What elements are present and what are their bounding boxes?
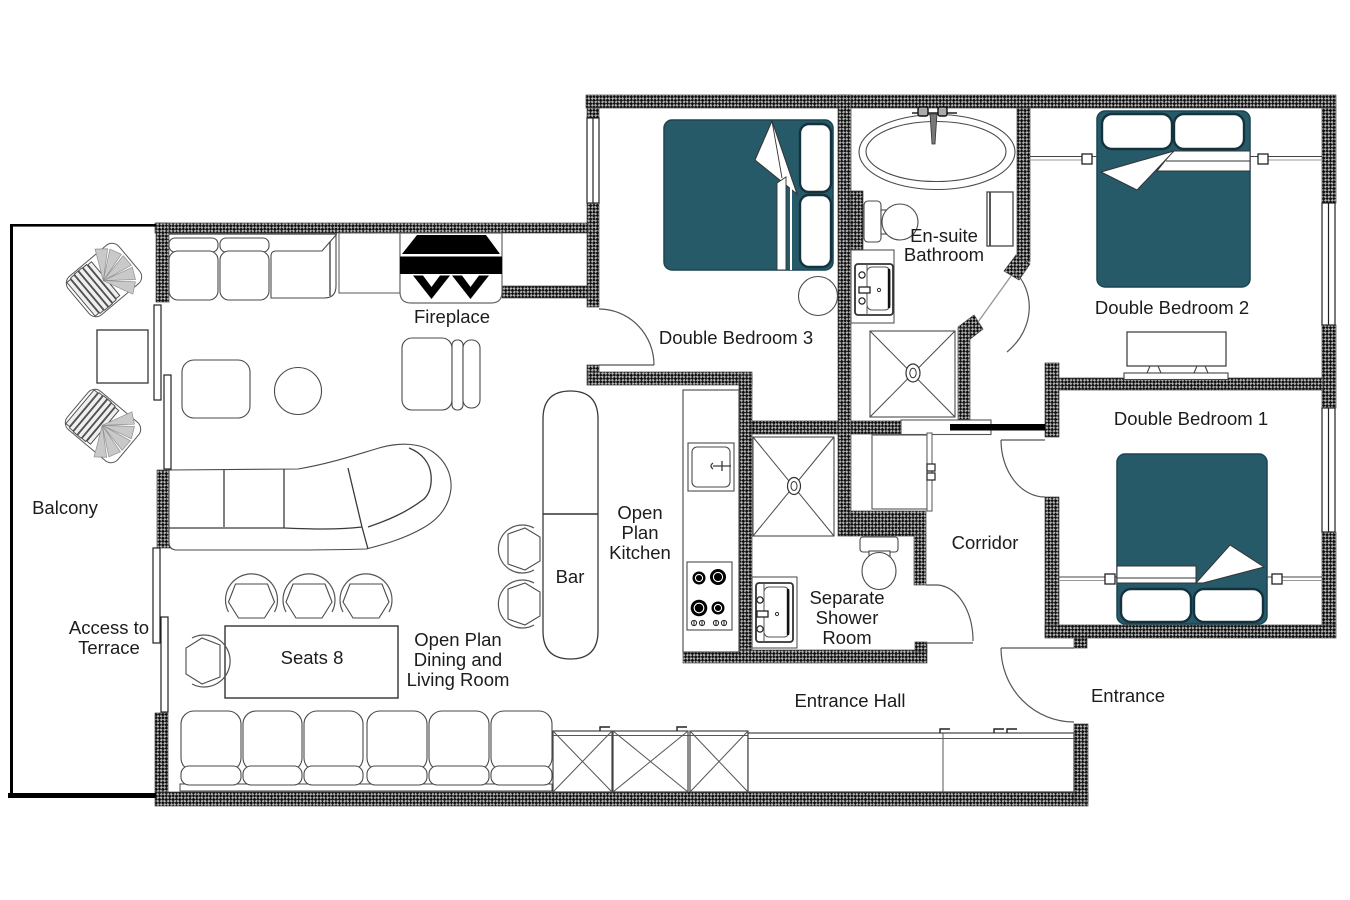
svg-text:Double Bedroom 1: Double Bedroom 1 [1114,408,1268,429]
svg-text:Shower: Shower [816,607,879,628]
svg-text:Double Bedroom 2: Double Bedroom 2 [1095,297,1249,318]
svg-text:Plan: Plan [621,522,658,543]
svg-text:Separate: Separate [809,587,884,608]
svg-text:Bar: Bar [556,566,585,587]
svg-text:Entrance Hall: Entrance Hall [794,690,905,711]
svg-text:Terrace: Terrace [78,637,140,658]
svg-text:Room: Room [822,627,871,648]
svg-text:Kitchen: Kitchen [609,542,671,563]
svg-text:Balcony: Balcony [32,497,99,518]
svg-text:Fireplace: Fireplace [414,306,490,327]
svg-text:Living Room: Living Room [407,669,510,690]
svg-text:Seats 8: Seats 8 [281,647,344,668]
svg-text:Entrance: Entrance [1091,685,1165,706]
svg-text:Dining and: Dining and [414,649,502,670]
svg-text:Access to: Access to [69,617,149,638]
svg-text:Bathroom: Bathroom [904,244,984,265]
svg-text:Corridor: Corridor [952,532,1019,553]
svg-text:En-suite: En-suite [910,225,978,246]
svg-text:Double Bedroom 3: Double Bedroom 3 [659,327,813,348]
svg-text:Open: Open [617,502,662,523]
svg-text:Open Plan: Open Plan [414,629,501,650]
